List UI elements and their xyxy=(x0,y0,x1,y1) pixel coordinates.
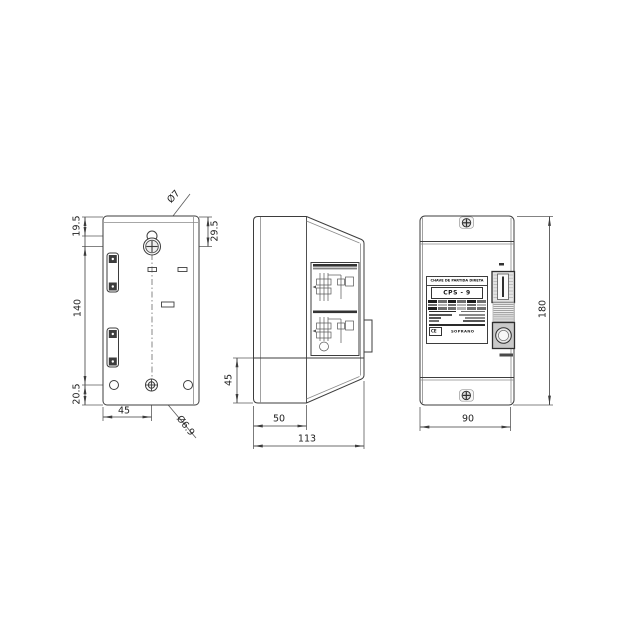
nameplate-footer-line xyxy=(429,324,485,326)
drawing-linework xyxy=(0,0,640,640)
nameplate-model: CPS - 9 xyxy=(432,288,482,298)
controls-column xyxy=(492,263,515,357)
technical-drawing-page: 19.5 140 20.5 29.5 45 Ø7 Ø6.9 45 50 113 … xyxy=(0,0,640,640)
nameplate: CHAVE DE PARTIDA DIRETA CPS - 9 CE SOPRA… xyxy=(426,276,488,344)
wiring-diagram-label xyxy=(311,263,359,356)
dim-label-45-back: 45 xyxy=(118,406,130,416)
dim-label-140: 140 xyxy=(73,299,83,317)
back-view xyxy=(82,194,212,438)
side-button-protrusion xyxy=(364,320,372,352)
ribbed-grip xyxy=(493,303,514,323)
ce-mark-box: CE xyxy=(429,327,442,336)
nameplate-title-bar: CHAVE DE PARTIDA DIRETA xyxy=(427,277,487,286)
dim-label-20-5: 20.5 xyxy=(72,383,82,404)
nameplate-model-box: CPS - 9 xyxy=(431,287,483,299)
on-mark xyxy=(499,263,504,266)
nameplate-title: CHAVE DE PARTIDA DIRETA xyxy=(427,277,487,284)
dim-label-45-side: 45 xyxy=(224,374,234,386)
dim-label-113: 113 xyxy=(298,434,316,444)
nameplate-ratings-table xyxy=(428,300,486,310)
dim-label-50: 50 xyxy=(273,414,285,424)
top-screw xyxy=(460,217,474,229)
bottom-screw xyxy=(460,390,474,402)
ce-mark: CE xyxy=(430,328,442,335)
dim-label-29-5: 29.5 xyxy=(210,220,220,241)
dim-label-90: 90 xyxy=(462,414,474,424)
brand-name: SOPRANO xyxy=(451,328,485,335)
button-caption-text xyxy=(500,354,514,357)
slider-switch xyxy=(492,272,515,303)
dim-label-180: 180 xyxy=(538,300,548,318)
nameplate-text-lines xyxy=(429,311,485,322)
dim-label-19-5: 19.5 xyxy=(72,215,82,236)
side-view xyxy=(233,217,372,450)
push-button xyxy=(493,323,515,349)
